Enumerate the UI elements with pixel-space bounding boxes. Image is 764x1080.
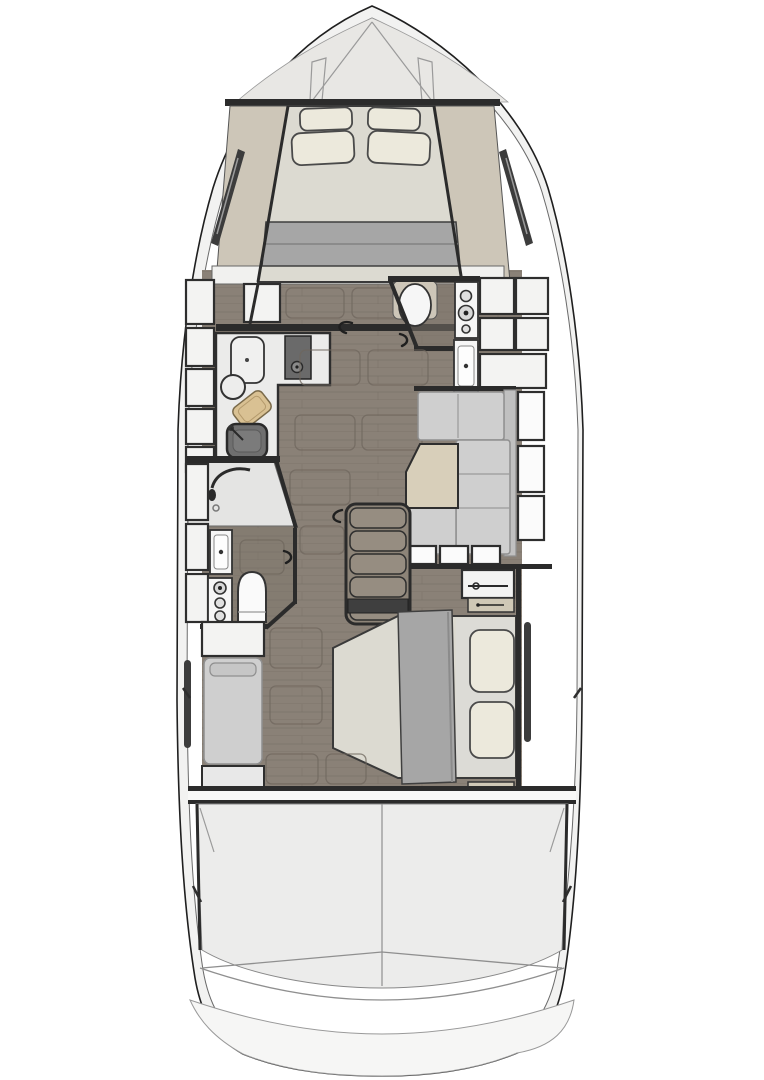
locker-cell	[186, 328, 214, 366]
master-blanket	[398, 610, 456, 784]
master-side-wall	[516, 564, 521, 794]
locker-cell	[186, 524, 208, 570]
transom-window	[440, 546, 468, 564]
locker-cell	[186, 464, 208, 520]
shower-control-dot	[218, 586, 222, 590]
pillow	[368, 107, 421, 131]
pillow	[367, 130, 431, 165]
shower-control-dot	[464, 311, 469, 316]
master-fwd-wall	[404, 564, 552, 569]
bench-headrest	[210, 663, 256, 676]
shower-control-knob	[462, 325, 470, 333]
locker-cell	[480, 354, 546, 388]
port-head	[186, 458, 297, 629]
port-head-top-wall	[186, 458, 278, 463]
bench-head-cabinet	[202, 622, 264, 656]
locker-cell	[480, 318, 514, 350]
dinette-cushion-right	[456, 440, 510, 554]
stair-tread	[350, 554, 406, 574]
hull-window	[518, 446, 544, 492]
transom-window	[472, 546, 500, 564]
locker-cell	[516, 278, 548, 314]
forward-cabinet	[244, 284, 280, 322]
pillow	[470, 702, 514, 758]
shower-control-knob	[215, 611, 225, 621]
yacht-floorplan	[0, 0, 764, 1080]
dinette-fwd-frame	[414, 386, 516, 391]
foredeck-surface	[236, 18, 508, 102]
wardrobe	[462, 570, 514, 598]
nightstand-handle-dot	[476, 603, 480, 607]
aft-bulkhead-aft-line	[188, 800, 576, 804]
dinette-cushion-top	[418, 392, 504, 440]
starboard-lockers	[480, 278, 548, 388]
forward-bulkhead	[225, 99, 500, 106]
shower-head	[208, 489, 216, 501]
stair-tread	[350, 508, 406, 528]
shower-control-knob	[215, 598, 225, 608]
port-vanity-faucet	[219, 550, 223, 554]
hull-window-slit-port	[184, 660, 191, 748]
aft-bulkhead-band	[188, 791, 576, 800]
head-vanity-faucet	[464, 364, 468, 368]
port-toilet	[238, 572, 266, 622]
stair-tread	[350, 577, 406, 597]
foredeck	[225, 18, 508, 106]
floorplan-canvas	[0, 0, 764, 1080]
hull-window	[518, 496, 544, 540]
locker-cell	[186, 409, 214, 444]
counter-lid-dot	[245, 358, 249, 362]
cooktop-burner-dot	[295, 365, 298, 368]
hull-window-slit-starboard	[524, 622, 531, 742]
round-sink	[221, 375, 245, 399]
stair-tread	[350, 531, 406, 551]
locker-cell	[186, 280, 214, 324]
locker-cell	[186, 369, 214, 406]
transom-window	[408, 546, 436, 564]
low-cabinet-tv	[348, 599, 408, 613]
pillow	[470, 630, 514, 692]
hull-window	[518, 392, 544, 440]
shower-control-knob	[461, 291, 472, 302]
locker-cell	[480, 278, 514, 314]
locker-cell	[186, 574, 208, 622]
locker-cell	[516, 318, 548, 350]
aft-bulkhead-fwd-line	[188, 786, 576, 791]
port-head-side-wall	[293, 528, 297, 604]
pillow	[300, 107, 353, 131]
pillow	[291, 130, 355, 165]
